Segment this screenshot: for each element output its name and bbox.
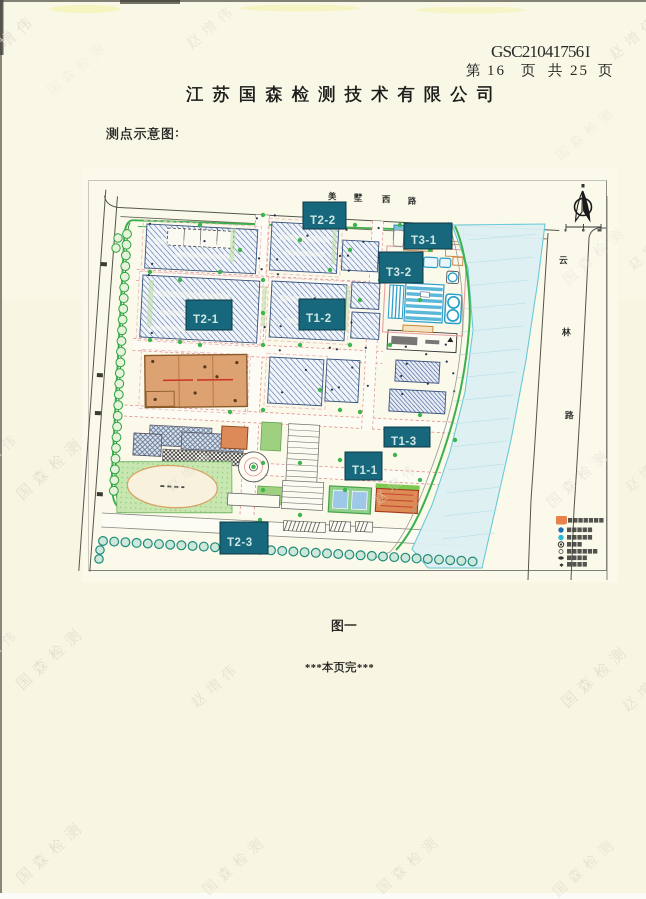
svg-text:I: I [585,44,590,61]
svg-text:GSC21041756: GSC21041756 [491,42,585,61]
svg-text:16: 16 [487,63,506,79]
svg-text:25: 25 [570,63,589,79]
svg-text:T3-2: T3-2 [386,267,412,279]
svg-text:T2-1: T2-1 [193,314,219,326]
svg-text:T2-3: T2-3 [227,537,253,549]
svg-text:***: *** [305,663,322,674]
svg-text:T1-1: T1-1 [352,465,378,477]
svg-text:T1-3: T1-3 [391,436,417,448]
svg-text:T2-2: T2-2 [310,215,336,227]
svg-text:***: *** [357,663,374,674]
svg-text:T3-1: T3-1 [411,235,437,247]
svg-text:T1-2: T1-2 [306,313,332,325]
svg-text::: : [175,126,179,140]
